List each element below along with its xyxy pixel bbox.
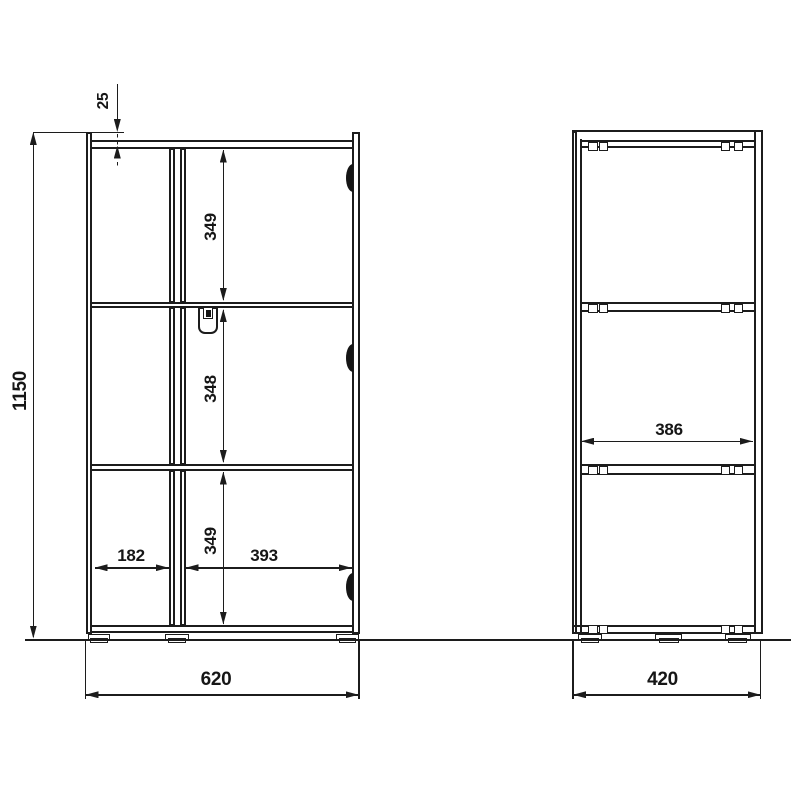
arrow-right-icon xyxy=(156,564,169,571)
arrow-left-icon xyxy=(95,564,108,571)
door-edge-segment xyxy=(180,148,186,303)
arrow-up-icon xyxy=(220,150,227,163)
dimension-line-386 xyxy=(581,441,753,443)
cam-connector xyxy=(721,304,731,313)
dimension-line-349a xyxy=(223,150,225,300)
cam-connector xyxy=(599,142,609,151)
cam-connector xyxy=(588,625,598,634)
cam-connector xyxy=(599,466,609,475)
cam-connector xyxy=(721,142,731,151)
door-edge-segment xyxy=(180,307,186,465)
dim-overall-width: 620 xyxy=(201,669,232,691)
dim-overall-depth: 420 xyxy=(647,669,678,691)
cam-connector xyxy=(588,466,598,475)
front-shelf-middle-lower xyxy=(92,464,352,471)
dim-compartment-middle: 348 xyxy=(201,375,221,402)
cam-connector xyxy=(599,304,609,313)
cam-connector xyxy=(599,625,609,634)
hinge-marker-bottom xyxy=(346,573,353,601)
cam-connector xyxy=(721,466,731,475)
arrow-down-icon xyxy=(114,119,121,132)
dimension-line-1150 xyxy=(33,133,35,637)
arrow-right-icon xyxy=(740,438,753,445)
side-top-panel xyxy=(572,130,755,132)
cam-connector xyxy=(734,625,744,634)
arrow-left-icon xyxy=(86,691,99,698)
front-right-side-panel xyxy=(352,132,360,634)
dim-left-section-width: 182 xyxy=(117,546,144,566)
side-back-panel xyxy=(754,130,763,634)
arrow-down-icon xyxy=(220,612,227,625)
arrow-up-icon xyxy=(220,472,227,485)
arrow-right-icon xyxy=(346,691,359,698)
extension-line xyxy=(572,641,574,699)
center-divider-segment xyxy=(169,470,175,627)
door-edge-segment xyxy=(180,470,186,627)
side-front-carcass-edge xyxy=(580,139,582,634)
arrow-right-icon xyxy=(339,564,352,571)
arrow-down-icon xyxy=(220,450,227,463)
extension-line xyxy=(33,132,124,134)
furniture-dimension-diagram: 1150 25 349 348 349 182 393 620 386 420 xyxy=(0,0,800,800)
cam-connector xyxy=(734,304,744,313)
arrow-down-icon xyxy=(30,626,37,639)
extension-line xyxy=(760,641,762,699)
center-divider-segment xyxy=(169,307,175,465)
extension-line xyxy=(85,641,87,699)
arrow-down-icon xyxy=(220,288,227,301)
cam-connector xyxy=(734,466,744,475)
front-shelf-middle-upper xyxy=(92,302,352,309)
center-divider-segment xyxy=(169,148,175,303)
arrow-up-icon xyxy=(30,132,37,145)
arrow-left-icon xyxy=(581,438,594,445)
front-left-side-panel xyxy=(86,132,93,634)
front-top-panel xyxy=(92,140,352,149)
dimension-line-349b xyxy=(223,472,225,624)
side-front-door-edge xyxy=(572,131,577,634)
dim-compartment-bottom: 349 xyxy=(201,527,221,554)
dim-right-section-width: 393 xyxy=(250,546,277,566)
dim-top-offset: 25 xyxy=(95,93,113,110)
dim-inner-depth: 386 xyxy=(655,420,682,440)
front-bottom-panel xyxy=(92,625,352,633)
dim-compartment-top: 349 xyxy=(201,213,221,240)
cam-connector xyxy=(721,625,731,634)
extension-line xyxy=(358,641,360,699)
floor-line xyxy=(25,639,791,641)
arrow-left-icon xyxy=(186,564,199,571)
dim-overall-height: 1150 xyxy=(10,371,32,411)
hinge-marker-top xyxy=(346,164,353,192)
arrow-up-icon xyxy=(220,309,227,322)
dimension-line-620 xyxy=(86,694,359,696)
door-lock-core xyxy=(206,310,211,317)
hinge-marker-middle xyxy=(346,344,353,372)
dimension-line-348 xyxy=(223,310,225,462)
dimension-line-420 xyxy=(573,694,761,696)
dimension-line-393 xyxy=(186,567,352,569)
arrow-left-icon xyxy=(573,691,586,698)
cam-connector xyxy=(734,142,744,151)
cam-connector xyxy=(588,304,598,313)
cam-connector xyxy=(588,142,598,151)
